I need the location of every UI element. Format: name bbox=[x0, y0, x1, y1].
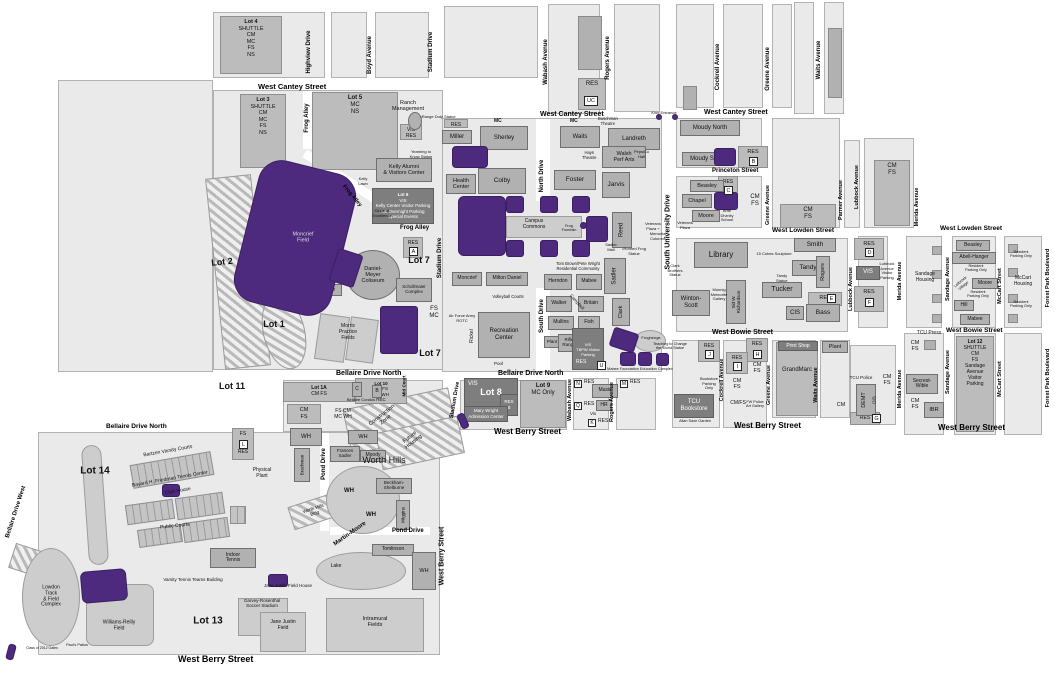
purple-commons-t3 bbox=[572, 196, 590, 213]
street-mccart-1-label: McCart Street bbox=[997, 268, 1003, 304]
bldg-milton-daniel-label: Milton Daniel bbox=[493, 276, 522, 282]
keybox-n: N bbox=[574, 380, 582, 388]
label-buschman: Buschman Theatre bbox=[598, 117, 618, 127]
label-varsity-tennis-label: Varsity Tennis Teams Building bbox=[148, 577, 238, 582]
street-boyd: Boyd Avenue bbox=[367, 36, 373, 74]
label-lot11: Lot 11 bbox=[219, 381, 245, 391]
street-west-cantey-3: West Cantey Street bbox=[704, 109, 768, 116]
bldg-miller-label: Miller bbox=[450, 134, 464, 141]
label-frog-fountain: Frog Fountain bbox=[556, 224, 582, 233]
keybox-uc: UC bbox=[584, 96, 598, 106]
purple-commons-t2 bbox=[540, 196, 558, 213]
label-dis: DIS bbox=[871, 396, 876, 404]
street-bellaire-west-label: Bellaire Drive West bbox=[5, 485, 27, 538]
lot-5-label: MC NS bbox=[350, 102, 359, 116]
bldg-beckham: Beckham- Shelburne bbox=[376, 478, 412, 494]
bldg-wh-right-label: WH bbox=[419, 568, 428, 574]
label-resident-parking-2: Resident Parking Only bbox=[964, 290, 992, 299]
label-jane-justin-field-label: Jane Justin Field bbox=[262, 620, 304, 632]
label-sadler-label: Sadler bbox=[612, 267, 619, 284]
label-sandage-housing-label: Sandage Housing bbox=[908, 272, 942, 284]
label-morris-label: Morris Practice Fields bbox=[330, 324, 366, 341]
label-lot13-label: Lot 13 bbox=[193, 615, 222, 627]
label-lot14: Lot 14 bbox=[80, 465, 109, 477]
label-lot7-south-label: Lot 7 bbox=[419, 348, 441, 358]
label-resident-parking-4-label: Resident Parking Only bbox=[1006, 300, 1036, 309]
keybox-j-label: J bbox=[708, 352, 711, 358]
bldg-plant-2-label: Plant bbox=[829, 344, 842, 350]
bldg-smith: Smith bbox=[794, 238, 836, 252]
purple-commons-right bbox=[586, 216, 608, 242]
bldg-ibr-label: IBR bbox=[929, 407, 938, 413]
street-sandage-2: Sandage Avenue bbox=[945, 350, 951, 394]
street-west-lowden-1: West Lowden Street bbox=[772, 227, 834, 234]
street-west-cantey-1-label: West Cantey Street bbox=[258, 82, 326, 91]
bldg-mabee: Mabee bbox=[576, 274, 602, 290]
bldg-condo-c: C bbox=[352, 382, 362, 397]
street-pond-h-label: Pond Drive bbox=[392, 528, 424, 534]
label-res-u: RES bbox=[576, 360, 586, 366]
street-stadium-mid-label: Stadium Drive bbox=[437, 238, 443, 278]
street-sandage-1-label: Sandage Avenue bbox=[945, 257, 951, 301]
street-lubbock-1: Lubbock Avenue bbox=[854, 165, 860, 209]
label-king-entrance: King Entrance bbox=[648, 111, 680, 116]
lot-4-label: SHUTTLE CM MC FS NS bbox=[238, 26, 263, 59]
bldg-chapel-label: Chapel bbox=[688, 198, 705, 204]
street-rogers-n: Rogers Avenue bbox=[605, 36, 611, 80]
lot-3-label: SHUTTLE CM MC FS NS bbox=[250, 104, 275, 137]
label-clark-label: Clark bbox=[618, 306, 624, 319]
keybox-k: K bbox=[588, 419, 596, 427]
bldg-health-center: Health Center bbox=[446, 174, 476, 194]
bldg-rec-center-label: Recreation Center bbox=[489, 328, 518, 341]
keybox-k-label: K bbox=[590, 420, 593, 426]
bldg-ibr: IBR bbox=[924, 402, 944, 418]
label-cmfs-police: CM FS bbox=[878, 374, 896, 387]
purple-mabee-ed-3 bbox=[638, 352, 652, 366]
street-pond-h: Pond Drive bbox=[392, 528, 424, 534]
label-moncrief-field: Moncrief Field bbox=[292, 232, 313, 245]
keybox-c: C bbox=[724, 186, 733, 195]
street-greene-s: Greene Avenue bbox=[766, 365, 772, 405]
lot-12-label: SHUTTLE CM FS Sandage Avenue Visitor Par… bbox=[964, 345, 987, 387]
street-north-drive-label: North Drive bbox=[539, 160, 545, 193]
label-resident-parking-4: Resident Parking Only bbox=[1006, 300, 1036, 309]
bldg-cis-label: CIS bbox=[790, 310, 800, 317]
label-lot7-north-label: Lot 7 bbox=[408, 255, 430, 265]
label-teaching-statue-label: Teaching to Change the World Statue bbox=[648, 342, 692, 351]
street-west-berry-v-label: West Berry Street bbox=[439, 527, 446, 586]
street-lubbock-1-label: Lubbock Avenue bbox=[854, 165, 860, 209]
label-clark: Clark bbox=[618, 306, 624, 319]
label-yearning: Yearning to Know Statue bbox=[406, 150, 436, 159]
bldg2-h8 bbox=[1008, 314, 1018, 323]
bldg-frances-sadler-label: Frances Sadler bbox=[337, 449, 353, 459]
lot-grandmarc: GrandMarc bbox=[776, 342, 818, 416]
lot-res-uc-label: RES bbox=[586, 81, 598, 88]
label-resident-parking-3-label: Resident Parking Only bbox=[1006, 250, 1036, 259]
purple-schollmaier-south bbox=[380, 306, 418, 354]
label-lot13: Lot 13 bbox=[193, 615, 222, 627]
label-fs-mc-label: FS MC bbox=[429, 306, 438, 320]
block-forest-park bbox=[1004, 333, 1042, 435]
street-west-cantey-3-label: West Cantey Street bbox=[704, 109, 768, 116]
bldg2-resuc-bldg bbox=[578, 16, 602, 70]
street-greene-mid-label: Greene Avenue bbox=[765, 185, 771, 225]
block-boyd-east bbox=[375, 12, 429, 78]
label-jjfh: Jane Justin Field House bbox=[252, 583, 324, 588]
street-merida-2-label: Merida Avenue bbox=[897, 262, 903, 301]
purple-moudy bbox=[714, 148, 736, 166]
bldg2-h4 bbox=[932, 314, 942, 323]
label-cmfs-moudy: CM FS bbox=[746, 194, 764, 208]
darklot-bookstore-label: TCU Bookstore bbox=[680, 399, 707, 414]
label-vis-k: Vis bbox=[590, 411, 596, 416]
keybox-b-right-label: B bbox=[752, 159, 756, 165]
bldg-sherley-label: Sherley bbox=[494, 135, 514, 142]
bldg-winton-scott: Winton- Scott bbox=[672, 290, 710, 316]
darklot-print-shop-label: Print Shop bbox=[786, 343, 809, 349]
label-volleyball-label: Volleyball Courts bbox=[486, 295, 530, 300]
label-allan-saxe: Allan Saxe Garden bbox=[674, 419, 716, 423]
bldg-milton-daniel: Milton Daniel bbox=[486, 272, 528, 286]
label-lot7-south: Lot 7 bbox=[419, 348, 441, 358]
label-res-q-label: RES bbox=[584, 402, 594, 408]
street-s-university: South University Drive bbox=[665, 194, 672, 269]
label-froghenge: Froghenge bbox=[636, 336, 666, 341]
label-jjfh-label: Jane Justin Field House bbox=[252, 583, 324, 588]
street-waits-n-label: Waits Avenue bbox=[816, 41, 822, 80]
label-pepsico: PepsiCo Hall bbox=[634, 150, 649, 159]
label-jane-justin-field: Jane Justin Field bbox=[262, 620, 304, 632]
label-moncrief-field-label: Moncrief Field bbox=[292, 232, 313, 245]
label-lowdon-track: Lowdon Track & Field Complex bbox=[41, 586, 61, 609]
keybox-l: L bbox=[239, 440, 248, 449]
label-range-duty: •Range Duty Statue bbox=[412, 115, 464, 120]
bldg-daniel-meyer-label: Daniel- Meyer Coliseum bbox=[362, 266, 385, 284]
bldg-tandy-label: Tandy bbox=[799, 264, 816, 271]
label-garvey: Garvey-Rosenthal Soccer Stadium bbox=[232, 598, 292, 608]
keybox-uc-label: UC bbox=[587, 98, 595, 104]
label-wiggins: Wiggins bbox=[400, 507, 405, 523]
lot-1a-label: CM FS bbox=[311, 391, 327, 397]
label-wh-oval-2-label: WH bbox=[366, 512, 376, 519]
block-rogers-east bbox=[614, 4, 660, 112]
field-jane-justin bbox=[260, 612, 306, 652]
lot-res-h-label: RES bbox=[752, 341, 762, 347]
bldg-condo-c-label: C bbox=[355, 387, 359, 393]
label-brite: Brite Divinity School bbox=[714, 209, 740, 223]
label-rotc: Air Force Army ROTC bbox=[444, 314, 480, 323]
label-res-fs-l-label: RES bbox=[232, 450, 254, 456]
label-rotc-label: Air Force Army ROTC bbox=[444, 314, 480, 323]
label-res-k-label: RES bbox=[598, 419, 608, 425]
label-allan-saxe-label: Allan Saxe Garden bbox=[674, 419, 716, 423]
label-wh-oval-1: WH bbox=[344, 488, 354, 495]
street-west-bowie-2: West Bowie Street bbox=[946, 327, 1003, 334]
street-greene-n: Greene Avenue bbox=[765, 47, 771, 91]
street-west-cantey-2: West Cantey Street bbox=[540, 111, 604, 118]
label-garvey-label: Garvey-Rosenthal Soccer Stadium bbox=[232, 598, 292, 608]
street-pond-v-label: Pond Drive bbox=[321, 448, 327, 480]
keybox-b-right: B bbox=[749, 157, 758, 166]
street-west-berry-2: West Berry Street bbox=[734, 421, 801, 430]
label-buschman-label: Buschman Theatre bbox=[598, 117, 618, 127]
label-resident-parking-1: Resident Parking Only bbox=[962, 264, 990, 273]
lot-cmfs-right-top: CM FS bbox=[874, 160, 910, 226]
label-cm-solo: CM bbox=[834, 402, 848, 408]
label-kelly-lawn-label: Kelly Lawn bbox=[352, 177, 374, 186]
lot-res-j-label: RES bbox=[704, 343, 714, 349]
label-brachman: Brachman bbox=[299, 455, 304, 476]
keybox-j: J bbox=[705, 350, 714, 359]
label-sadler: Sadler bbox=[612, 267, 619, 284]
street-south-drive-label: South Drive bbox=[539, 299, 545, 333]
bldg-walker-label: Walker bbox=[551, 301, 566, 307]
bldg-wh-1-label: WH bbox=[301, 434, 311, 441]
block-highview-east bbox=[331, 12, 367, 78]
street-frog-alley-h-label: Frog Alley bbox=[400, 225, 429, 231]
label-cmfs-secrest-2-label: CM FS bbox=[906, 398, 924, 411]
bldg-moudy-north-label: Moudy North bbox=[693, 125, 727, 132]
bldg-kelly: Kelly Alumni & Visitors Center bbox=[376, 158, 432, 182]
lot-res-b-right-label: RES bbox=[747, 149, 758, 156]
bldg-herndon: Herndon bbox=[544, 274, 572, 290]
label-rogers-bldg: Rogers bbox=[820, 263, 826, 281]
label-resident-parking-3: Resident Parking Only bbox=[1006, 250, 1036, 259]
label-demt-label: DEMT bbox=[861, 392, 867, 408]
label-worth-hills-label: Worth Hills bbox=[362, 455, 405, 465]
bldg-indoor-tennis-label: Indoor Tennis bbox=[226, 553, 240, 564]
label-physical-plant: Physical Plant bbox=[244, 468, 280, 480]
street-south-drive: South Drive bbox=[539, 299, 545, 333]
street-west-berry-3: West Berry Street bbox=[938, 423, 1005, 432]
darklot-mary-wright: Mary Wright Admission Center bbox=[464, 406, 508, 422]
street-forest-park-1-label: Forest Park Boulevard bbox=[1045, 249, 1051, 308]
bldg-mullins-label: Mullins bbox=[553, 320, 569, 326]
label-fs-mc: FS MC bbox=[429, 306, 438, 320]
label-sid-richardson: Sid W. Richardson bbox=[731, 291, 741, 314]
lot-fs-l-res-label: FS bbox=[240, 431, 246, 437]
keybox-m-label: M bbox=[622, 381, 626, 387]
keybox-u: U bbox=[597, 361, 606, 370]
label-res-n: RES bbox=[584, 380, 594, 386]
street-mid-court: Mid Court bbox=[402, 376, 407, 397]
keybox-a: A bbox=[409, 247, 418, 256]
lot-8-title: Lot 8 bbox=[480, 387, 502, 398]
lot-res-miller: RES bbox=[444, 119, 468, 128]
lot-6: Lot 6VIS Kelly Center Visitor Parking No… bbox=[372, 188, 434, 224]
label-cmfs-1: CM FS bbox=[748, 362, 766, 375]
street-west-berry-4-label: West Berry Street bbox=[178, 654, 253, 664]
label-campus-commons-label: Campus Commons bbox=[512, 219, 556, 231]
purple-commons-b2 bbox=[540, 240, 558, 257]
label-rickel: Rickel bbox=[470, 329, 476, 343]
street-stadium-n: Stadium Drive bbox=[428, 32, 434, 72]
lot-res-a-label: RES bbox=[408, 240, 418, 246]
keybox-n-label: N bbox=[576, 381, 580, 387]
label-cmfs-2: CM FS bbox=[728, 378, 746, 391]
label-rickel-label: Rickel bbox=[470, 329, 476, 343]
label-mccart-housing: McCart Housing bbox=[1006, 276, 1040, 288]
bldg-hill: Hill bbox=[954, 300, 974, 311]
street-west-lowden-2: West Lowden Street bbox=[940, 225, 1002, 232]
bldg-library: Library bbox=[694, 242, 748, 268]
bldg-moore-right-label: Moore bbox=[978, 281, 992, 287]
street-rogers-n-label: Rogers Avenue bbox=[605, 36, 611, 80]
bldg-wh-2-label: WH bbox=[358, 434, 367, 440]
street-waits-s-label: Waits Avenue bbox=[813, 367, 819, 402]
bldg-foster: Foster bbox=[554, 170, 596, 190]
street-bellaire-3: Bellaire Drive North bbox=[106, 423, 167, 430]
bldg-bass: Bass bbox=[806, 304, 840, 322]
street-west-bowie-1: West Bowie Street bbox=[712, 329, 773, 336]
keybox-f-label: F bbox=[868, 300, 871, 306]
label-lake-label: Lake bbox=[324, 564, 348, 570]
label-mc-sherley: MC bbox=[494, 119, 502, 125]
bldg-bass-label: Bass bbox=[816, 309, 830, 316]
label-bellaire-condos-label: Bellaire Condos bbox=[340, 398, 382, 403]
street-west-cantey-1: West Cantey Street bbox=[258, 82, 326, 91]
label-res-fs-l: RES bbox=[232, 450, 254, 456]
bldg-miller: Miller bbox=[442, 130, 472, 144]
lot-8-vis-label: VIS bbox=[468, 381, 478, 388]
bldg2-univ-small bbox=[683, 86, 697, 110]
label-reed: Reed bbox=[619, 223, 626, 237]
label-tcu-press-label: TCU Press bbox=[912, 331, 946, 337]
bldg-britain-label: Britain bbox=[584, 301, 598, 307]
purple-commons-b1 bbox=[506, 240, 524, 257]
label-teaching-statue: Teaching to Change the World Statue bbox=[648, 342, 692, 351]
label-physical-plant-label: Physical Plant bbox=[244, 468, 280, 480]
label-fs-cm-mc-wh: FS CM MC WH bbox=[330, 409, 356, 421]
bldg-secrest-wible: Secrest- Wible bbox=[906, 374, 938, 394]
keybox-l-label: L bbox=[242, 442, 245, 448]
label-mabee-foundation: Mabee Foundation Education Complex bbox=[600, 367, 680, 371]
street-stadium-n-label: Stadium Drive bbox=[428, 32, 434, 72]
street-forest-park-2: Forest Park Boulevard bbox=[1045, 349, 1051, 408]
street-west-berry-3-label: West Berry Street bbox=[938, 423, 1005, 432]
label-res-u-label: RES bbox=[576, 360, 586, 366]
lot-8-vis: VIS bbox=[468, 381, 478, 388]
label-res-m: RES bbox=[630, 380, 640, 386]
keybox-i-label: I bbox=[737, 364, 739, 370]
bldg-mabee-label: Mabee bbox=[581, 279, 596, 285]
street-sandage-1: Sandage Avenue bbox=[945, 257, 951, 301]
keybox-e-label: E bbox=[830, 296, 834, 302]
label-wiggins-label: Wiggins bbox=[400, 507, 405, 523]
bldg-walker: Walker bbox=[546, 296, 572, 312]
label-king-entrance-label: King Entrance bbox=[648, 111, 680, 116]
bldg-mabee-right-label: Mabee bbox=[967, 317, 982, 323]
block-stadium-ne bbox=[444, 6, 538, 78]
lot-res-f-label: RES bbox=[863, 289, 874, 296]
field-lake bbox=[316, 552, 406, 590]
label-tandy-statue-label: Tandy Statue bbox=[776, 274, 788, 283]
bldg-beckham-label: Beckham- Shelburne bbox=[384, 481, 405, 491]
label-art-gallery: FW Police Art Gallery bbox=[742, 400, 768, 409]
lot-cmfs-wh-label: CM FS bbox=[300, 407, 309, 420]
label-intramural-label: Intramural Fields bbox=[352, 616, 398, 629]
label-wh-oval-1-label: WH bbox=[344, 488, 354, 495]
label-tcu-police: TCU Police bbox=[846, 375, 876, 380]
bldg-moudy-north: Moudy North bbox=[680, 120, 740, 136]
label-hays: Hays Theatre bbox=[582, 151, 596, 161]
street-wabash-n-label: Wabash Avenue bbox=[543, 39, 549, 85]
label-veterans-plaza-2: Veterans Plaza bbox=[672, 221, 698, 230]
bldg-condo-b-label: B bbox=[375, 389, 378, 395]
label-intramural: Intramural Fields bbox=[352, 616, 398, 629]
label-ranch-mgmt: Ranch Management bbox=[386, 100, 430, 113]
bldg-secrest-wible-label: Secrest- Wible bbox=[913, 379, 932, 390]
street-parmer: Parmer Avenue bbox=[838, 180, 844, 220]
lot-9-label: MC Only bbox=[531, 390, 554, 397]
lot-res-i-label: RES bbox=[732, 355, 742, 361]
label-morris: Morris Practice Fields bbox=[330, 324, 366, 341]
label-demt: DEMT bbox=[861, 392, 867, 408]
bldg-landreth-label: Landreth bbox=[622, 136, 646, 143]
label-cm-solo-label: CM bbox=[834, 402, 848, 408]
label-mc-sherley-label: MC bbox=[494, 119, 502, 125]
street-bellaire-west: Bellaire Drive West bbox=[5, 485, 27, 538]
label-lot14-label: Lot 14 bbox=[80, 465, 109, 477]
label-cmfs-police-label: CM FS bbox=[878, 374, 896, 387]
keybox-d: D bbox=[865, 248, 874, 257]
bldg-plant-2: Plant bbox=[822, 341, 848, 353]
lot-res-c-label: RES bbox=[723, 179, 733, 185]
bldg-moncrief-hall: Moncrief bbox=[452, 272, 482, 286]
keybox-h: H bbox=[753, 350, 762, 359]
bldg-tcu-press bbox=[924, 340, 936, 350]
label-cmfs-secrest-1-label: CM FS bbox=[906, 340, 924, 353]
label-class-2012-label: Class of 2012 Gates bbox=[16, 646, 68, 650]
street-highview-label: Highview Drive bbox=[306, 30, 312, 73]
bldg-cis: CIS bbox=[786, 306, 804, 320]
bldg-moudy-south-label: Moudy S bbox=[690, 156, 714, 163]
street-bellaire-2: Bellaire Drive North bbox=[498, 370, 563, 377]
bldg-schollmaier-label: Schollmaier Complex bbox=[402, 285, 426, 295]
label-circle-excellence-label: Circle of Excellence bbox=[368, 209, 396, 218]
keybox-a-label: A bbox=[412, 249, 416, 255]
label-horned-frog-label: •Horned Frog Statue bbox=[616, 247, 652, 256]
label-tom-brown-label: Tom Brown/Pete Wright Residential Commun… bbox=[548, 262, 608, 272]
bldg-indoor-tennis: Indoor Tennis bbox=[210, 548, 256, 568]
purple-commons-left bbox=[458, 196, 506, 256]
keybox-e: E bbox=[827, 294, 836, 303]
street-greene-s-label: Greene Avenue bbox=[766, 365, 772, 405]
label-veterans-plaza-1-label: Veterans Plaza ⌁ bbox=[640, 222, 666, 231]
street-mid-court-label: Mid Court bbox=[402, 376, 407, 397]
label-res-n-label: RES bbox=[584, 380, 594, 386]
bldg-beasley-right-label: Beasley bbox=[964, 243, 982, 249]
lot-3: Lot 3SHUTTLE CM MC FS NS bbox=[240, 94, 286, 168]
label-lot1: Lot 1 bbox=[263, 319, 285, 329]
lot-9-title: Lot 9 bbox=[536, 383, 550, 390]
label-monnig: Monnig Meteorite Gallery bbox=[706, 288, 732, 302]
street-merida-3: Merida Avenue bbox=[897, 370, 903, 409]
bldg-colby: Colby bbox=[478, 168, 526, 194]
street-west-berry-2-label: West Berry Street bbox=[734, 421, 801, 430]
label-monnig-label: Monnig Meteorite Gallery bbox=[706, 288, 732, 302]
darklot-tbpw-label: VIS TBPW Visitor Parking bbox=[576, 342, 600, 357]
street-west-bowie-2-label: West Bowie Street bbox=[946, 327, 1003, 334]
street-lubbock-2-label: Lubbock Avenue bbox=[848, 267, 854, 311]
bldg-chapel: Chapel bbox=[682, 194, 712, 208]
street-cockrell-s-label: Cockrell Avenue bbox=[719, 359, 725, 402]
label-horned-frog: •Horned Frog Statue bbox=[616, 247, 652, 256]
label-pepsico-label: PepsiCo Hall bbox=[634, 150, 649, 159]
street-lubbock-2: Lubbock Avenue bbox=[848, 267, 854, 311]
